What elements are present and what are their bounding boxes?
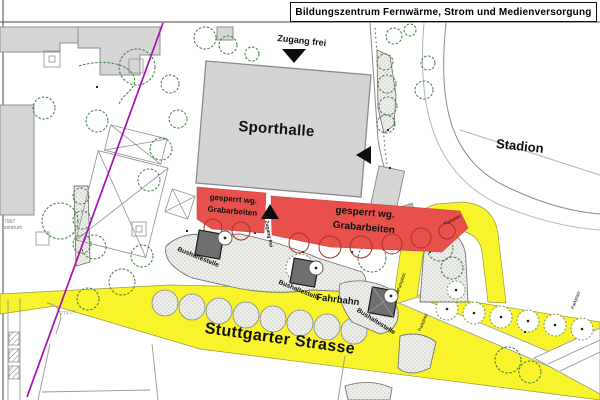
planned-buildings [76, 123, 195, 257]
site-plan: Bildungszentrum Fernwärme, Strom und Med… [0, 0, 600, 400]
stadium-track [422, 23, 600, 230]
access-arrow-down-icon [282, 49, 306, 63]
plan-title: Bildungszentrum Fernwärme, Strom und Med… [290, 2, 597, 22]
parcel-zentrum: zentrum [4, 225, 22, 231]
boundary-line [27, 23, 163, 397]
plan-title-text: Bildungszentrum Fernwärme, Strom und Med… [295, 7, 591, 18]
